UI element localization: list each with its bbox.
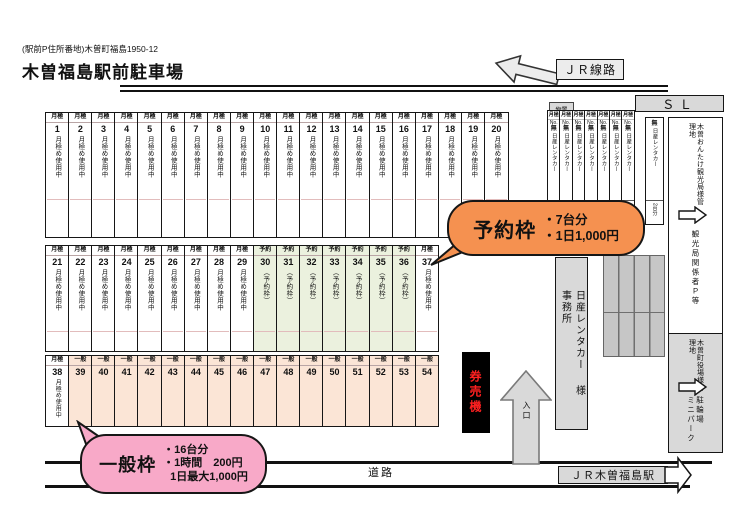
space-type-label: 月極 bbox=[115, 246, 138, 256]
space-status: 月極め使用中 bbox=[191, 269, 200, 311]
space-number: 24 bbox=[122, 256, 132, 269]
space-number: 31 bbox=[283, 256, 293, 269]
space-number: 6 bbox=[170, 123, 175, 136]
space-number: 16 bbox=[399, 123, 409, 136]
parking-space-31: 予約31（予約枠） bbox=[276, 245, 301, 352]
space-status: 月極め使用中 bbox=[53, 379, 61, 418]
space-type-label: 一般 bbox=[92, 356, 115, 366]
zone-usage: 観光局関係者Ｐ等 bbox=[669, 230, 722, 306]
cell-guide-line bbox=[186, 199, 207, 200]
cell-guide-line bbox=[139, 199, 160, 200]
parking-space-49: 一般49 bbox=[299, 355, 324, 427]
space-status: 月極め使用中 bbox=[215, 136, 224, 178]
space-number: 54 bbox=[422, 366, 432, 379]
space-status: 月極め使用中 bbox=[145, 136, 154, 178]
space-number: 17 bbox=[422, 123, 432, 136]
rental-company: 日産レンタカー bbox=[588, 133, 594, 172]
space-number: 18 bbox=[445, 123, 455, 136]
parking-space-12: 月極12月極め使用中 bbox=[299, 112, 324, 238]
space-type-label: 月極 bbox=[208, 246, 231, 256]
parking-space-41: 一般41 bbox=[114, 355, 139, 427]
space-status: 月極め使用中 bbox=[469, 136, 478, 178]
cell-guide-line bbox=[70, 331, 91, 332]
parking-space-16: 月極16月極め使用中 bbox=[392, 112, 417, 238]
parking-space-29: 月極29月極め使用中 bbox=[230, 245, 255, 352]
space-type-label: 月極 bbox=[231, 246, 254, 256]
reserved-callout-title: 予約枠 bbox=[473, 214, 536, 243]
manager-text-2: 理地 bbox=[689, 123, 696, 138]
parking-space-52: 一般52 bbox=[369, 355, 394, 427]
space-type-label: 月極 bbox=[560, 111, 572, 120]
cell-guide-line bbox=[139, 331, 160, 332]
space-type-label: 一般 bbox=[138, 356, 161, 366]
space-status: 月極め使用中 bbox=[238, 269, 247, 311]
space-status: 月極め使用中 bbox=[492, 136, 501, 178]
general-callout-title: 一般枠 bbox=[99, 451, 156, 477]
parking-space-53: 一般53 bbox=[392, 355, 417, 427]
space-type-label: 月極 bbox=[416, 113, 439, 123]
space-status: （予約枠） bbox=[353, 269, 362, 304]
parking-space-42: 一般42 bbox=[137, 355, 162, 427]
space-type-label: 予約 bbox=[254, 246, 277, 256]
rental-company: 日産レンタカー bbox=[652, 128, 658, 167]
general-detail-2: ・1時間 200円 bbox=[163, 457, 248, 471]
parking-space-5: 月極5月極め使用中 bbox=[137, 112, 162, 238]
rental-company: 日産レンタカー bbox=[576, 133, 582, 172]
parking-space-44: 一般44 bbox=[184, 355, 209, 427]
space-type-label: 月極 bbox=[162, 246, 185, 256]
vacancy-label: 無 bbox=[551, 126, 557, 133]
parking-space-25: 月極25月極め使用中 bbox=[137, 245, 162, 352]
space-type-label: 予約 bbox=[393, 246, 416, 256]
rental-company: 日産レンタカー bbox=[613, 133, 619, 172]
space-type-label: 月極 bbox=[69, 246, 92, 256]
space-status: 月極め使用中 bbox=[261, 136, 270, 178]
space-status: （予約枠） bbox=[330, 269, 339, 304]
space-number: 1 bbox=[55, 123, 60, 136]
entrance-arrow: 入口 bbox=[500, 370, 552, 465]
space-type-label: 月極 bbox=[610, 111, 622, 120]
space-number: 34 bbox=[353, 256, 363, 269]
station-label: ＪＲ木曽福島駅 bbox=[558, 466, 668, 484]
cell-guide-line bbox=[232, 331, 253, 332]
space-type-label: 月極 bbox=[622, 111, 634, 120]
space-number: 20 bbox=[491, 123, 501, 136]
space-status: 月極め使用中 bbox=[307, 136, 316, 178]
cell-guide-line bbox=[255, 331, 276, 332]
parking-space-3: 月極3月極め使用中 bbox=[91, 112, 116, 238]
space-status: 月極め使用中 bbox=[423, 269, 432, 311]
space-number: 5 bbox=[147, 123, 152, 136]
space-type-label: 月極 bbox=[323, 113, 346, 123]
space-type-label: 予約 bbox=[370, 246, 393, 256]
parking-space-22: 月極22月極め使用中 bbox=[68, 245, 93, 352]
space-type-label: 一般 bbox=[393, 356, 416, 366]
space-number: 7 bbox=[193, 123, 198, 136]
space-type-label: 月極 bbox=[254, 113, 277, 123]
space-type-label: 一般 bbox=[346, 356, 369, 366]
space-number: 46 bbox=[237, 366, 247, 379]
space-status: （予約枠） bbox=[307, 269, 316, 304]
usage-text: 駐輪場 bbox=[696, 396, 705, 425]
cell-guide-line bbox=[163, 199, 184, 200]
space-number: 23 bbox=[98, 256, 108, 269]
space-type-label: 月極 bbox=[393, 113, 416, 123]
sl-label: ＳＬ bbox=[635, 95, 724, 112]
station-arrow-icon bbox=[664, 456, 692, 499]
parking-space-21: 月極21月極め使用中 bbox=[45, 245, 70, 352]
space-status: （予約枠） bbox=[376, 269, 385, 304]
parking-space-32: 予約32（予約枠） bbox=[299, 245, 324, 352]
parking-space-15: 月極15月極め使用中 bbox=[369, 112, 394, 238]
vacancy-label: 無 bbox=[625, 126, 631, 133]
parking-space-48: 一般48 bbox=[276, 355, 301, 427]
reserved-callout: 予約枠 ・7台分 ・1日1,000円 bbox=[447, 200, 645, 256]
space-type-label: 月極 bbox=[185, 246, 208, 256]
parking-space-36: 予約36（予約枠） bbox=[392, 245, 417, 352]
space-number: 2 bbox=[78, 123, 83, 136]
zone-usage: 駐輪場 ミニパーク bbox=[669, 396, 722, 444]
cell-guide-line bbox=[116, 331, 137, 332]
road-label: 道路 bbox=[368, 464, 394, 480]
tourism-bureau-zone: 木曽おんたけ観光局様管 理地 観光局関係者Ｐ等 bbox=[669, 118, 722, 333]
parking-row-3: 月極38月極め使用中一般39一般40一般41一般42一般43一般44一般45一般… bbox=[45, 355, 438, 427]
space-status: 月極め使用中 bbox=[191, 136, 200, 178]
parking-space-2: 月極2月極め使用中 bbox=[68, 112, 93, 238]
space-status: 月極め使用中 bbox=[99, 136, 108, 178]
space-number: 35 bbox=[376, 256, 386, 269]
space-number: 25 bbox=[145, 256, 155, 269]
parking-row-1: 月極1月極め使用中月極2月極め使用中月極3月極め使用中月極4月極め使用中月極5月… bbox=[45, 112, 507, 238]
parking-space-38: 月極38月極め使用中 bbox=[45, 355, 70, 427]
cell-guide-line bbox=[255, 199, 276, 200]
space-number: 22 bbox=[75, 256, 85, 269]
cell-guide-line bbox=[47, 199, 68, 200]
parking-space-26: 月極26月極め使用中 bbox=[161, 245, 186, 352]
right-arrow-icon bbox=[678, 206, 708, 229]
space-number: 51 bbox=[353, 366, 363, 379]
parking-space-9: 月極9月極め使用中 bbox=[230, 112, 255, 238]
cell-guide-line bbox=[93, 199, 114, 200]
space-type-label: 月極 bbox=[548, 111, 560, 120]
cell-guide-line bbox=[301, 199, 322, 200]
space-type-label: 月極 bbox=[598, 111, 610, 120]
space-number: 50 bbox=[330, 366, 340, 379]
space-type-label: 月極 bbox=[346, 113, 369, 123]
ticket-machine-label: 券売機 bbox=[467, 370, 484, 415]
jr-line-label: ＪＲ線路 bbox=[556, 59, 624, 80]
space-type-label: 月極 bbox=[462, 113, 485, 123]
space-status: 月極め使用中 bbox=[330, 136, 339, 178]
parking-space-7: 月極7月極め使用中 bbox=[184, 112, 209, 238]
parking-space-45: 一般45 bbox=[207, 355, 232, 427]
space-number: 53 bbox=[399, 366, 409, 379]
space-number: 14 bbox=[353, 123, 363, 136]
space-status: 月極め使用中 bbox=[423, 136, 432, 178]
space-number: 32 bbox=[306, 256, 316, 269]
space-status: 月極め使用中 bbox=[76, 269, 85, 311]
space-type-label: 月極 bbox=[69, 113, 92, 123]
usage-text: 観光局関係者Ｐ等 bbox=[691, 230, 700, 306]
general-detail-1: ・16台分 bbox=[163, 444, 248, 458]
striped-parking-block bbox=[603, 255, 665, 357]
parking-space-1: 月極1月極め使用中 bbox=[45, 112, 70, 238]
space-type-label: 月極 bbox=[162, 113, 185, 123]
parking-space-35: 予約35（予約枠） bbox=[369, 245, 394, 352]
space-status: 月極め使用中 bbox=[399, 136, 408, 178]
page-title: 木曽福島駅前駐車場 bbox=[22, 58, 184, 83]
space-number: 36 bbox=[399, 256, 409, 269]
cell-guide-line bbox=[394, 331, 415, 332]
space-status: 月極め使用中 bbox=[284, 136, 293, 178]
space-status: 月極め使用中 bbox=[168, 269, 177, 311]
vacancy-label: 無 bbox=[563, 126, 569, 133]
cell-guide-line bbox=[70, 199, 91, 200]
space-status: 月極め使用中 bbox=[145, 269, 154, 311]
space-number: 29 bbox=[237, 256, 247, 269]
space-status: （予約枠） bbox=[284, 269, 293, 304]
space-type-label: 一般 bbox=[162, 356, 185, 366]
space-type-label: 一般 bbox=[277, 356, 300, 366]
space-type-label: 月極 bbox=[92, 246, 115, 256]
space-type-label: 月極 bbox=[485, 113, 508, 123]
space-number: 49 bbox=[306, 366, 316, 379]
space-number: 27 bbox=[191, 256, 201, 269]
cell-guide-line bbox=[116, 199, 137, 200]
space-type-label: 月極 bbox=[138, 246, 161, 256]
cell-guide-line bbox=[209, 331, 230, 332]
vacancy-label: 無 bbox=[576, 126, 582, 133]
space-number: 42 bbox=[145, 366, 155, 379]
space-status: 月極め使用中 bbox=[168, 136, 177, 178]
cell-guide-line bbox=[324, 199, 345, 200]
space-type-label: 月極 bbox=[585, 111, 597, 120]
space-number: 39 bbox=[75, 366, 85, 379]
space-type-label: 一般 bbox=[323, 356, 346, 366]
cell-guide-line bbox=[324, 331, 345, 332]
space-type-label: 一般 bbox=[115, 356, 138, 366]
cell-guide-line bbox=[347, 199, 368, 200]
office-name-2: 事務所 bbox=[560, 290, 571, 325]
cell-guide-line bbox=[209, 199, 230, 200]
space-type-label: 予約 bbox=[300, 246, 323, 256]
manager-text: 木曽おんたけ観光局様管 bbox=[697, 123, 704, 206]
space-type-label: 月極 bbox=[573, 111, 585, 120]
rental-company: 日産レンタカー bbox=[625, 133, 631, 172]
space-number: 12 bbox=[306, 123, 316, 136]
cell-guide-line bbox=[93, 331, 114, 332]
space-number: 10 bbox=[260, 123, 270, 136]
space-number: 48 bbox=[283, 366, 293, 379]
space-number: 52 bbox=[376, 366, 386, 379]
parking-space-34: 予約34（予約枠） bbox=[345, 245, 370, 352]
cell-guide-line bbox=[347, 331, 368, 332]
rental-capacity: 2台分 bbox=[646, 200, 663, 224]
space-number: 40 bbox=[98, 366, 108, 379]
space-number: 11 bbox=[284, 123, 294, 136]
cell-guide-line bbox=[278, 199, 299, 200]
parking-space-40: 一般40 bbox=[91, 355, 116, 427]
space-type-label: 一般 bbox=[370, 356, 393, 366]
space-status: 月極め使用中 bbox=[376, 136, 385, 178]
parking-row-2: 月極21月極め使用中月極22月極め使用中月極23月極め使用中月極24月極め使用中… bbox=[45, 245, 438, 352]
space-status: 月極め使用中 bbox=[122, 269, 131, 311]
space-type-label: 月極 bbox=[46, 246, 69, 256]
parking-space-11: 月極11月極め使用中 bbox=[276, 112, 301, 238]
parking-space-39: 一般39 bbox=[68, 355, 93, 427]
cell-guide-line bbox=[417, 199, 438, 200]
parking-space-43: 一般43 bbox=[161, 355, 186, 427]
parking-space-4: 月極4月極め使用中 bbox=[114, 112, 139, 238]
cell-guide-line bbox=[186, 331, 207, 332]
space-type-label: 月極 bbox=[138, 113, 161, 123]
managed-zone: 木曽おんたけ観光局様管 理地 観光局関係者Ｐ等 木曽町役場様管 理地 bbox=[668, 117, 723, 453]
space-status: 月極め使用中 bbox=[446, 136, 455, 178]
space-type-label: 月極 bbox=[92, 113, 115, 123]
usage-text-2: ミニパーク bbox=[687, 396, 696, 444]
cell-guide-line bbox=[301, 331, 322, 332]
parking-space-6: 月極6月極め使用中 bbox=[161, 112, 186, 238]
cell-guide-line bbox=[47, 331, 68, 332]
cell-guide-line bbox=[371, 331, 392, 332]
space-number: 41 bbox=[122, 366, 132, 379]
parking-space-10: 月極10月極め使用中 bbox=[253, 112, 278, 238]
reserved-detail-2: ・1日1,000円 bbox=[543, 228, 619, 244]
space-status: 月極め使用中 bbox=[99, 269, 108, 311]
space-number: 43 bbox=[168, 366, 178, 379]
space-number: 13 bbox=[330, 123, 340, 136]
space-type-label: 予約 bbox=[346, 246, 369, 256]
space-status: 月極め使用中 bbox=[122, 136, 131, 178]
space-number: 47 bbox=[260, 366, 270, 379]
space-type-label: 月極 bbox=[439, 113, 462, 123]
space-type-label: 予約 bbox=[323, 246, 346, 256]
vacancy-label: 無 bbox=[600, 126, 606, 133]
parking-space-17: 月極17月極め使用中 bbox=[415, 112, 440, 238]
rental-company: 日産レンタカー bbox=[551, 133, 557, 172]
space-type-label: 月極 bbox=[46, 356, 69, 366]
cell-guide-line bbox=[232, 199, 253, 200]
space-number: 3 bbox=[101, 123, 106, 136]
space-type-label: 月極 bbox=[231, 113, 254, 123]
space-number: 45 bbox=[214, 366, 224, 379]
space-type-label: 月極 bbox=[115, 113, 138, 123]
space-status: （予約枠） bbox=[261, 269, 270, 304]
cell-guide-line bbox=[371, 199, 392, 200]
space-type-label: 月極 bbox=[208, 113, 231, 123]
parking-space-24: 月極24月極め使用中 bbox=[114, 245, 139, 352]
parking-space-54: 一般54 bbox=[415, 355, 440, 427]
space-number: 30 bbox=[260, 256, 270, 269]
parking-space-50: 一般50 bbox=[322, 355, 347, 427]
manager-text-2: 理地 bbox=[689, 339, 696, 354]
vacancy-label: 無 bbox=[613, 126, 619, 133]
space-status: 月極め使用中 bbox=[53, 269, 62, 311]
parking-space-14: 月極14月極め使用中 bbox=[345, 112, 370, 238]
cell-guide-line bbox=[440, 199, 461, 200]
ticket-machine: 券売機 bbox=[462, 352, 490, 433]
parking-space-30: 予約30（予約枠） bbox=[253, 245, 278, 352]
space-type-label: 一般 bbox=[185, 356, 208, 366]
cell-guide-line bbox=[394, 199, 415, 200]
space-type-label: 一般 bbox=[254, 356, 277, 366]
space-number: 4 bbox=[124, 123, 129, 136]
parking-space-8: 月極8月極め使用中 bbox=[207, 112, 232, 238]
parking-space-33: 予約33（予約枠） bbox=[322, 245, 347, 352]
reserved-detail-1: ・7台分 bbox=[543, 212, 619, 228]
rental-company: 日産レンタカー bbox=[563, 133, 569, 172]
entrance-label: 入口 bbox=[521, 401, 532, 421]
space-type-label: 一般 bbox=[69, 356, 92, 366]
space-type-label: 月極 bbox=[185, 113, 208, 123]
space-number: 21 bbox=[52, 256, 62, 269]
rental-side-space: 無 日産レンタカー 2台分 bbox=[645, 117, 664, 225]
cell-guide-line bbox=[163, 331, 184, 332]
office-honorific: 様 bbox=[574, 385, 585, 397]
space-type-label: 一般 bbox=[416, 356, 439, 366]
railway-line-bottom bbox=[120, 90, 668, 92]
address-note: (駅前P住所番地)木曽町福島1950-12 bbox=[22, 43, 158, 55]
space-type-label: 予約 bbox=[277, 246, 300, 256]
space-status: （予約枠） bbox=[399, 269, 408, 304]
space-number: 26 bbox=[168, 256, 178, 269]
railway-line-top bbox=[120, 85, 668, 87]
parking-space-13: 月極13月極め使用中 bbox=[322, 112, 347, 238]
space-status: 月極め使用中 bbox=[76, 136, 85, 178]
space-number: 33 bbox=[330, 256, 340, 269]
parking-space-23: 月極23月極め使用中 bbox=[91, 245, 116, 352]
space-type-label: 月極 bbox=[300, 113, 323, 123]
space-type-label: 月極 bbox=[46, 113, 69, 123]
parking-space-27: 月極27月極め使用中 bbox=[184, 245, 209, 352]
space-number: 38 bbox=[52, 366, 62, 379]
rental-office-box: 日産レンタカー様 事務所 bbox=[555, 257, 588, 430]
space-status: 月極め使用中 bbox=[353, 136, 362, 178]
space-type-label: 月極 bbox=[277, 113, 300, 123]
jr-line-arrow-icon bbox=[488, 48, 565, 103]
space-type-label: 一般 bbox=[208, 356, 231, 366]
parking-space-51: 一般51 bbox=[345, 355, 370, 427]
space-number: 19 bbox=[468, 123, 478, 136]
space-type-label: 一般 bbox=[300, 356, 323, 366]
vacancy-label: 無 bbox=[651, 120, 657, 128]
space-status: 月極め使用中 bbox=[238, 136, 247, 178]
general-detail-3: 1日最大1,000円 bbox=[163, 471, 248, 485]
parking-space-46: 一般46 bbox=[230, 355, 255, 427]
space-type-label: 一般 bbox=[231, 356, 254, 366]
general-callout: 一般枠 ・16台分 ・1時間 200円 1日最大1,000円 bbox=[80, 434, 267, 494]
space-number: 8 bbox=[217, 123, 222, 136]
parking-map: (駅前P住所番地)木曽町福島1950-12 木曽福島駅前駐車場 ＪＲ線路 ＳＬ … bbox=[0, 0, 750, 530]
rental-company: 日産レンタカー bbox=[600, 133, 606, 172]
parking-space-28: 月極28月極め使用中 bbox=[207, 245, 232, 352]
parking-space-47: 一般47 bbox=[253, 355, 278, 427]
town-hall-zone: 木曽町役場様管 理地 駐輪場 ミニパーク bbox=[669, 333, 722, 452]
cell-guide-line bbox=[278, 331, 299, 332]
cell-guide-line bbox=[417, 331, 438, 332]
space-number: 9 bbox=[240, 123, 245, 136]
space-status: 月極め使用中 bbox=[215, 269, 224, 311]
space-number: 44 bbox=[191, 366, 201, 379]
space-number: 15 bbox=[376, 123, 386, 136]
office-name: 日産レンタカー bbox=[574, 290, 585, 371]
capacity-text: 2台分 bbox=[652, 203, 658, 224]
vacancy-label: 無 bbox=[588, 126, 594, 133]
space-type-label: 月極 bbox=[370, 113, 393, 123]
zone-manager: 木曽おんたけ観光局様管 理地 bbox=[669, 123, 722, 206]
space-number: 28 bbox=[214, 256, 224, 269]
space-status: 月極め使用中 bbox=[53, 136, 62, 178]
